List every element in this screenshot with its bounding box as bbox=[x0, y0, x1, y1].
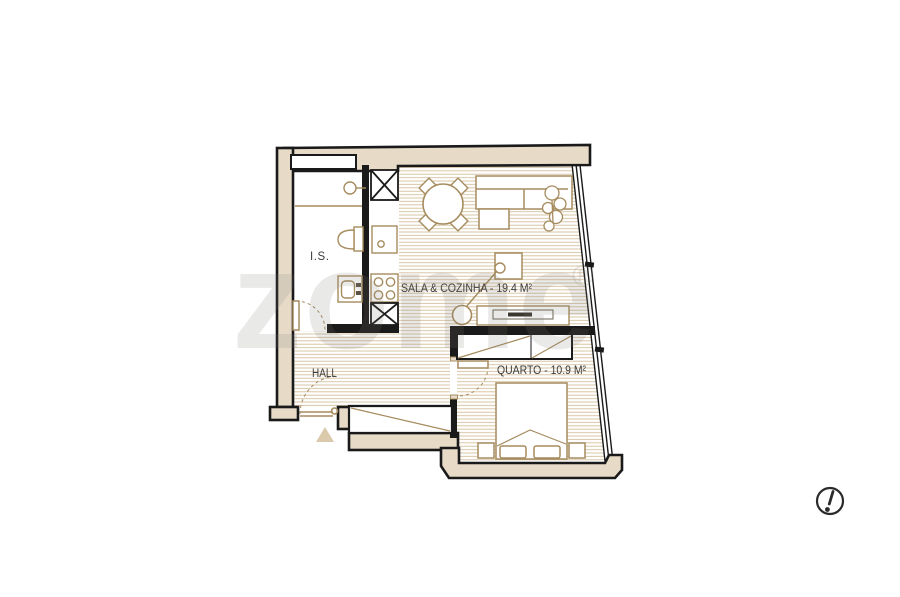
alert-exclamation-icon[interactable] bbox=[817, 488, 843, 514]
floorplan-canvas: I.S. SALA & COZINHA - 19.4 M² HALL QUART… bbox=[0, 0, 900, 597]
top-wall-niche bbox=[291, 155, 356, 169]
fridge-icon bbox=[371, 170, 398, 200]
pillow bbox=[534, 446, 560, 458]
nightstand bbox=[569, 443, 585, 458]
nightstand bbox=[478, 443, 494, 458]
hall-closet bbox=[349, 406, 452, 433]
watermark-registered-icon: ® bbox=[572, 260, 594, 293]
watermark: zome ® bbox=[232, 221, 598, 378]
left-wall-foot bbox=[270, 407, 298, 420]
floorplan-drawing: I.S. SALA & COZINHA - 19.4 M² HALL QUART… bbox=[0, 0, 900, 597]
pillow bbox=[500, 446, 526, 458]
dining-table bbox=[423, 184, 463, 224]
entrance-triangle-icon bbox=[316, 427, 334, 442]
watermark-text: zome bbox=[232, 221, 598, 378]
